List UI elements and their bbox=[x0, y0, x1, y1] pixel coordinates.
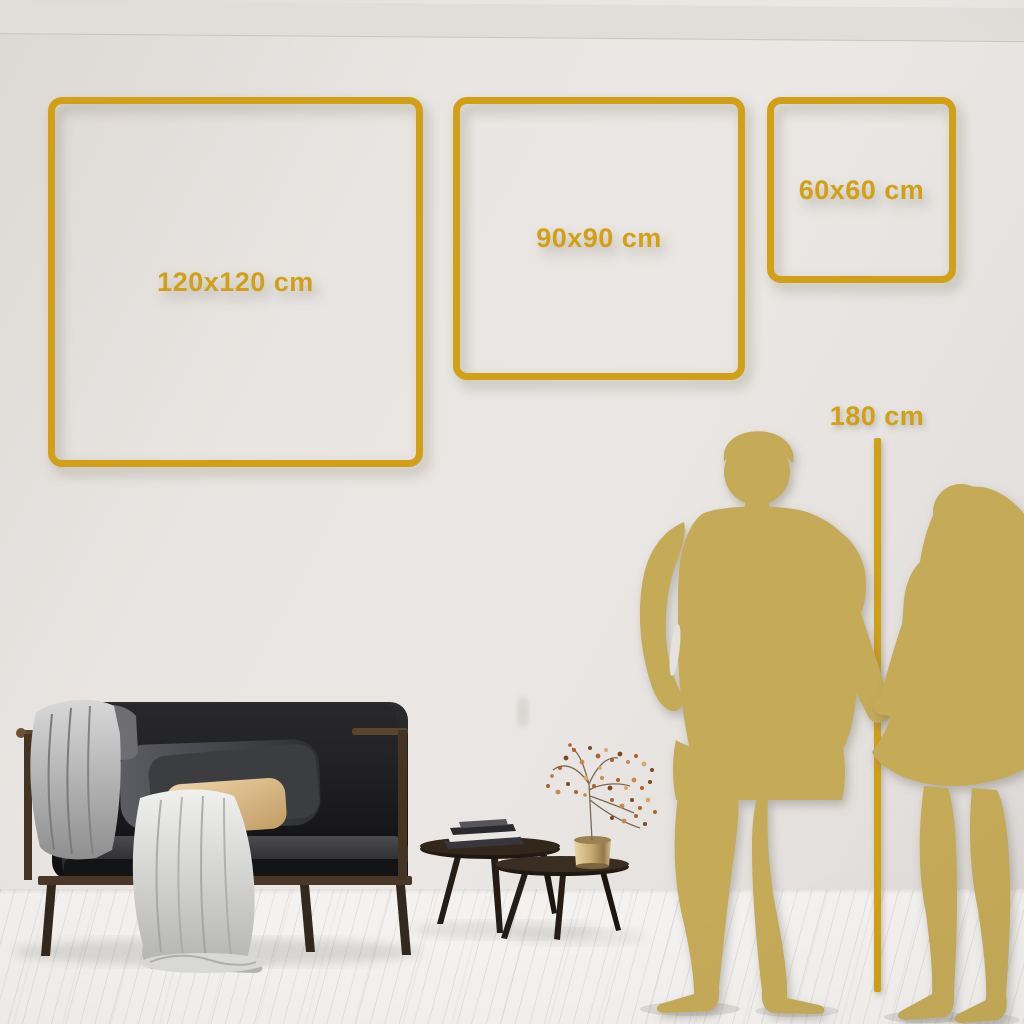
size-label-90: 90x90 cm bbox=[536, 223, 662, 254]
wood-floor bbox=[0, 889, 1024, 1024]
size-frame-60: 60x60 cm bbox=[767, 97, 956, 283]
size-label-60: 60x60 cm bbox=[799, 175, 925, 206]
size-label-120: 120x120 cm bbox=[157, 267, 314, 298]
size-frame-120: 120x120 cm bbox=[48, 97, 423, 467]
size-guide-scene: 120x120 cm 90x90 cm 60x60 cm 180 cm bbox=[0, 0, 1024, 1024]
height-reference-label: 180 cm bbox=[806, 401, 948, 432]
size-frame-90: 90x90 cm bbox=[453, 97, 745, 380]
height-reference-line bbox=[874, 438, 881, 992]
